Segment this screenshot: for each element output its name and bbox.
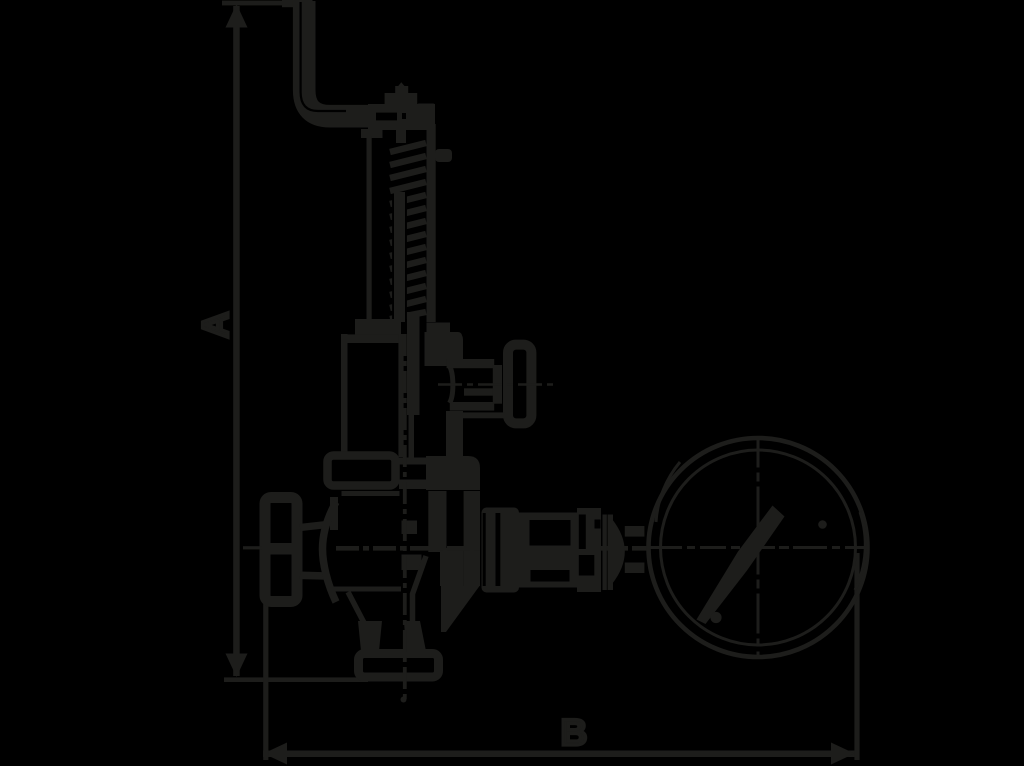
svg-text:B: B <box>561 712 588 753</box>
svg-text:A: A <box>195 312 236 339</box>
